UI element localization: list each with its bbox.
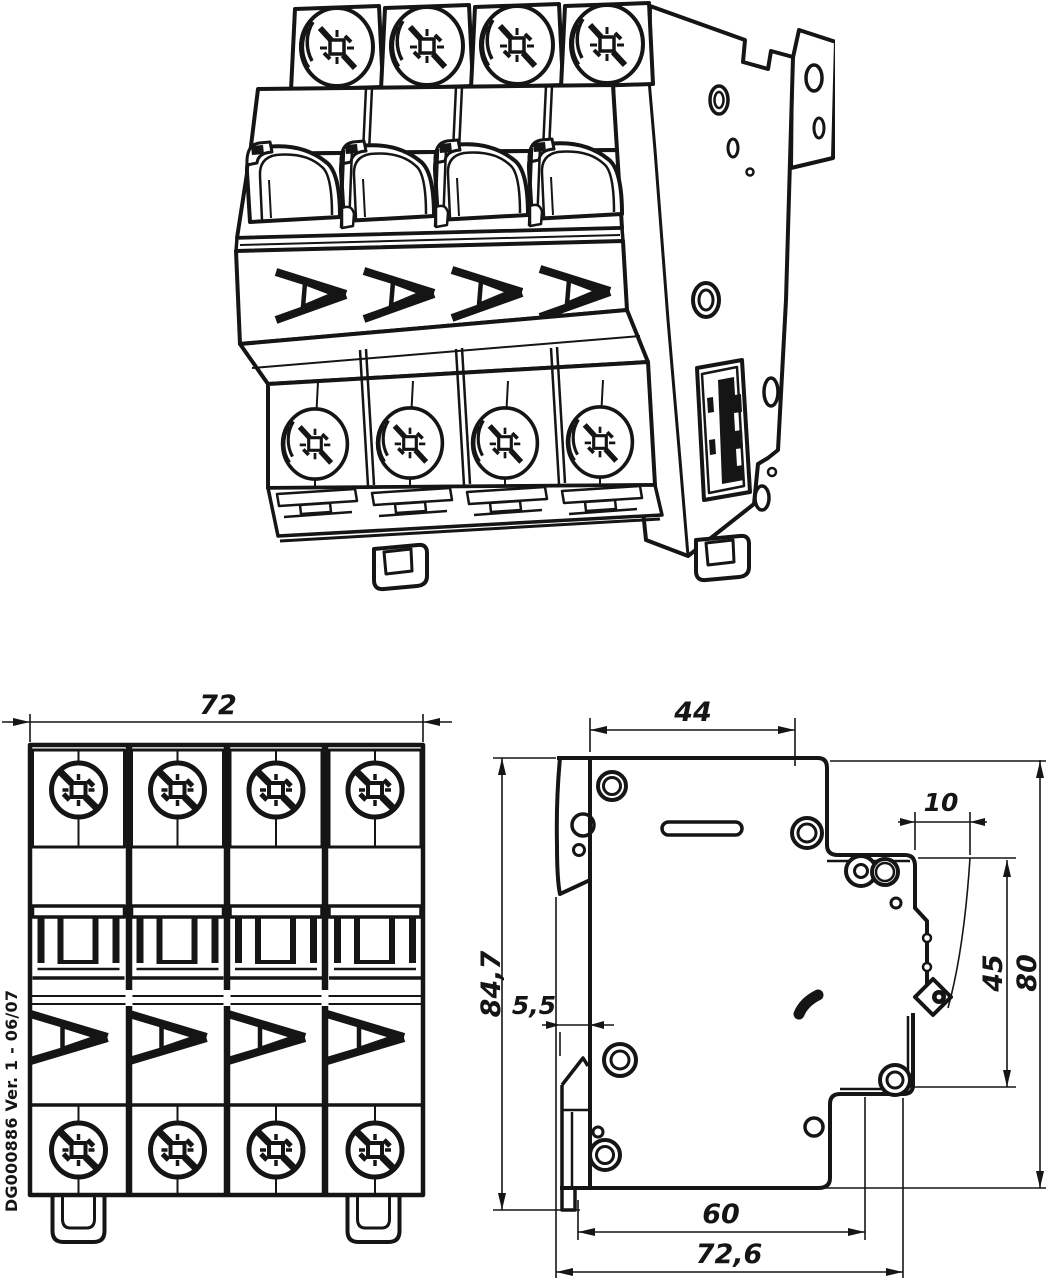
side-view: 44 10 84,7 5,5 45	[470, 680, 1048, 1280]
svg-text:84,7: 84,7	[476, 950, 507, 1017]
din-clip	[696, 536, 749, 580]
rating-label	[697, 360, 750, 500]
dimension-clip-offset: 5,5	[512, 991, 614, 1056]
din-clip	[348, 1196, 400, 1242]
isometric-view	[225, 0, 835, 615]
dimension-body-height: 80	[824, 760, 1046, 1188]
breaker-module	[327, 750, 421, 1195]
breaker-module	[31, 750, 125, 1195]
side-face-details	[572, 772, 970, 1170]
dimension-recess-height: 45	[906, 858, 1016, 1087]
svg-text:45: 45	[978, 954, 1009, 993]
svg-text:60: 60	[702, 1199, 740, 1230]
dimension-depth-top: 44	[590, 697, 795, 766]
svg-text:44: 44	[673, 697, 712, 728]
top-terminal-screws	[291, 3, 653, 90]
svg-text:10: 10	[924, 788, 959, 817]
toggle-switches	[237, 139, 622, 238]
svg-text:72,6: 72,6	[696, 1239, 763, 1270]
front-view: 72 DG000886 Ver. 1 - 06/07	[0, 680, 470, 1255]
dimension-lip: 10	[898, 788, 987, 855]
dimension-overall-width: 72	[2, 690, 452, 742]
side-body-outline	[557, 758, 927, 1188]
front-body	[30, 745, 423, 1242]
din-clip	[53, 1196, 105, 1242]
din-clip	[374, 545, 427, 589]
dim-width-label: 72	[199, 690, 237, 721]
dimension-rail-depth: 60	[578, 1097, 865, 1240]
drawing-serial-note: DG000886 Ver. 1 - 06/07	[2, 990, 21, 1212]
breaker-module	[130, 750, 224, 1195]
svg-text:80: 80	[1012, 954, 1043, 992]
technical-drawing-page: 72 DG000886 Ver. 1 - 06/07	[0, 0, 1048, 1280]
breaker-module	[228, 750, 322, 1195]
svg-text:5,5: 5,5	[512, 991, 556, 1020]
dimension-height-overall: 84,7	[476, 758, 580, 1210]
rear-flange	[791, 30, 835, 168]
